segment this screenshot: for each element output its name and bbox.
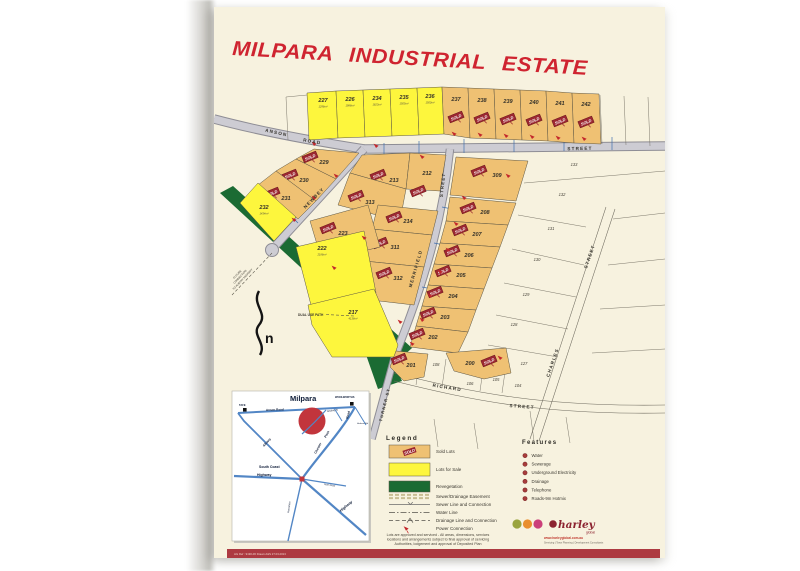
logo-dot-red	[549, 520, 557, 528]
legend-item-label: Lots for Sale	[436, 467, 462, 472]
lot-number-242: 242	[580, 102, 591, 108]
svg-text:DUAL USE PATH: DUAL USE PATH	[298, 313, 324, 317]
legend-sym-power	[404, 526, 409, 530]
paper-sheet: MILPARA INDUSTRIAL ESTATE	[214, 7, 665, 558]
legend-item-label: Sewer Line and Connection	[436, 502, 492, 507]
lot-number-205: 205	[455, 273, 466, 279]
legend-item-label: Sewer/Drainage Easement	[436, 494, 491, 499]
lot-number-232: 232	[258, 205, 269, 211]
lot-number-204: 204	[447, 294, 458, 300]
lot-200	[446, 348, 511, 379]
lot-number-104: 104	[515, 383, 523, 388]
features: Features WaterSewerageUnderground Electr…	[522, 440, 577, 501]
feature-item-label: Drainage	[532, 479, 550, 484]
street-label-charles: CHARLES	[545, 347, 560, 377]
feature-item-label: Sewerage	[532, 462, 552, 467]
feature-bullet	[523, 462, 527, 466]
lot-number-227: 227	[317, 98, 328, 104]
lot-number-201: 201	[405, 363, 415, 369]
lot-number-132: 132	[559, 192, 567, 197]
legend-item-label: Power Connection	[436, 526, 473, 531]
inset-woolworths-marker	[350, 402, 354, 406]
lot-number-230: 230	[298, 178, 309, 184]
lot-number-106: 106	[467, 381, 475, 386]
lot-number-130: 130	[534, 257, 542, 262]
inset-label-milpara: Milpara	[290, 394, 317, 403]
feature-bullet	[523, 497, 527, 501]
lot-number-311: 311	[391, 245, 400, 251]
lot-area-232: 1434m²	[259, 212, 268, 216]
features-title: Features	[522, 440, 557, 446]
inset-label-woolworths: WOOLWORTHS	[335, 395, 355, 399]
street-label-street: STREET	[567, 146, 592, 151]
lot-number-309: 309	[492, 173, 502, 179]
logo-dot-green	[512, 519, 521, 528]
lot-number-127: 127	[521, 361, 529, 366]
logo-url: www.harleyglobal.com.au	[543, 536, 583, 540]
lot-area-222: 2186m²	[316, 253, 326, 257]
lot-number-133: 133	[571, 162, 579, 167]
feature-bullet	[523, 471, 527, 475]
inset-label-anson-road: Anson Road	[266, 407, 284, 412]
lot-239	[494, 89, 522, 140]
legend-item-label: Water Line	[436, 510, 458, 515]
lot-number-202: 202	[427, 335, 438, 341]
feature-item-label: Roads-9m Hotmix	[532, 496, 567, 501]
inset-label-tafe: TAFE	[239, 403, 246, 407]
inset-tafe-marker	[243, 408, 247, 412]
lot-number-229: 229	[318, 160, 329, 166]
lot-number-208: 208	[479, 210, 490, 216]
lot-number-240: 240	[528, 100, 539, 106]
inset-label-highway: Highway	[257, 473, 271, 477]
inset-junction-marker	[300, 477, 305, 482]
lot-area-236: 1500m²	[425, 101, 434, 105]
lot-area-234: 1623m²	[372, 103, 381, 107]
lot-number-203: 203	[439, 315, 450, 321]
lot-number-236: 236	[424, 94, 435, 100]
svg-text:Authorities, lodgement and app: Authorities, lodgement and approval of D…	[395, 542, 482, 546]
logo-sub: global	[586, 531, 595, 535]
page-title: MILPARA INDUSTRIAL ESTATE	[232, 37, 589, 80]
lot-240	[520, 90, 548, 141]
lot-number-222: 222	[316, 246, 327, 252]
lot-237	[442, 87, 470, 138]
lot-number-239: 239	[502, 99, 513, 105]
lot-number-238: 238	[476, 98, 487, 104]
lot-number-231: 231	[280, 196, 290, 202]
street-label-street: STREET	[583, 244, 596, 269]
lot-number-206: 206	[463, 253, 474, 259]
feature-item-label: Underground Electricity	[532, 470, 578, 475]
lot-number-108: 108	[433, 362, 441, 367]
feature-bullet	[523, 454, 527, 458]
lot-number-312: 312	[393, 276, 403, 282]
harley-global-logo: harley global www.harleyglobal.com.au Se…	[512, 519, 604, 545]
lot-number-212: 212	[421, 171, 432, 177]
lot-number-217: 217	[347, 310, 358, 316]
lot-number-226: 226	[344, 97, 355, 103]
lot-number-235: 235	[398, 95, 409, 101]
street-label-street: STREET	[509, 403, 535, 410]
legend-sym-sewer	[408, 502, 413, 504]
inset-label-hudson-rd: Hudson Rd	[357, 423, 369, 425]
logo-dot-magenta	[533, 519, 542, 528]
legend-item-label: Revegetation	[436, 484, 463, 489]
lot-number-213: 213	[388, 178, 399, 184]
lot-number-237: 237	[450, 97, 461, 103]
legend: Legend SOLDSold LotsLots for SaleReveget…	[386, 435, 497, 533]
feature-item-label: Water	[532, 453, 544, 458]
legend-title: Legend	[386, 435, 418, 442]
feature-bullet	[523, 479, 527, 483]
footer-bar: HG Ref : 9190-06 Drawn A&S 27.03.2013	[227, 549, 660, 558]
lot-309	[450, 157, 528, 201]
lot-area-217: 4138m²	[348, 317, 357, 321]
lot-area-227: 1296m²	[318, 105, 327, 109]
lot-number-207: 207	[471, 232, 482, 238]
future-connection-note: FUTURE CONNECTION TO ALBANY HIGHWAY	[226, 253, 272, 295]
lot-number-234: 234	[371, 96, 382, 102]
feature-item-label: Telephone	[532, 487, 552, 492]
lot-238	[468, 88, 496, 139]
inset-label-south-coast: South Coast	[259, 465, 280, 469]
disclaimer: Lots are approved and serviced - All are…	[387, 533, 490, 546]
lot-number-241: 241	[554, 101, 564, 107]
legend-swatch-sale	[389, 463, 430, 476]
scanned-estate-flyer: MILPARA INDUSTRIAL ESTATE	[0, 0, 800, 571]
legend-swatch-reveg	[389, 481, 430, 492]
scan-shadow	[186, 0, 216, 571]
lot-number-128: 128	[511, 322, 519, 327]
power-connection-marker	[398, 320, 403, 324]
lot-number-200: 200	[464, 361, 475, 367]
logo-dot-orange	[523, 519, 532, 528]
legend-item-label: Drainage Line and Connection	[436, 518, 497, 523]
inset-locality-map: MilparaWOOLWORTHSTAFEAnson RoadNewbey St…	[232, 391, 371, 543]
legend-item-label: Sold Lots	[436, 449, 456, 454]
svg-text:locations and arrangements sub: locations and arrangements subject to fi…	[387, 538, 489, 542]
north-arrow: n	[257, 291, 274, 355]
lot-number-131: 131	[548, 226, 555, 231]
svg-text:Lots are approved and serviced: Lots are approved and serviced - All are…	[387, 533, 490, 537]
lot-number-214: 214	[402, 219, 413, 225]
logo-wordmark: harley	[558, 519, 596, 531]
lot-241	[546, 91, 574, 143]
estate-plan-svg: MILPARA INDUSTRIAL ESTATE	[214, 7, 665, 558]
logo-tagline: Servicing | Town Planning | Development …	[544, 542, 604, 545]
lot-number-105: 105	[493, 377, 501, 382]
footer-ref: HG Ref : 9190-06 Drawn A&S 27.03.2013	[234, 552, 286, 556]
lot-area-235: 1505m²	[399, 102, 408, 106]
map-shape	[420, 193, 422, 196]
lot-area-226: 1988m²	[345, 104, 354, 108]
inset-estate-marker	[299, 408, 326, 435]
feature-bullet	[523, 488, 527, 492]
lot-number-129: 129	[523, 292, 531, 297]
svg-text:n: n	[265, 330, 274, 346]
